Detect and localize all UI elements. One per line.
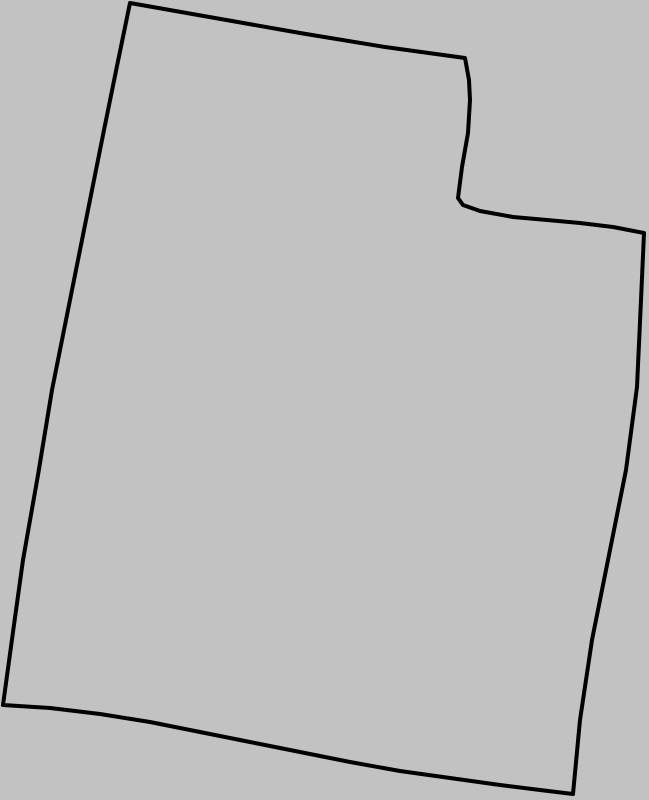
utah-state-outline — [3, 3, 644, 794]
map-svg — [0, 0, 649, 800]
map-canvas — [0, 0, 649, 800]
